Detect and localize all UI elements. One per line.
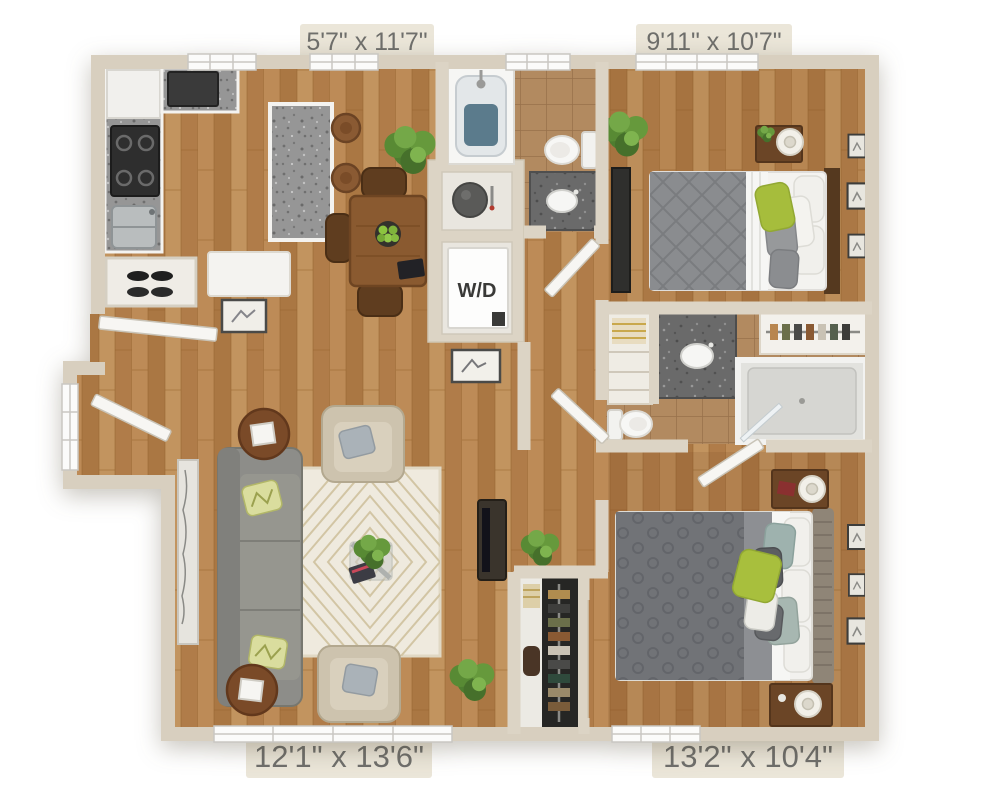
dimension-text-bedroom-2: 13'2" x 10'4"	[663, 739, 833, 774]
wall-art-entry	[222, 300, 266, 332]
comforter	[650, 172, 746, 290]
bathroom-2	[608, 312, 866, 442]
dining-chair	[326, 214, 352, 262]
window-entry-sidelight	[62, 384, 78, 470]
toilet	[545, 132, 597, 168]
throw-pillow	[342, 663, 378, 696]
storage-box	[523, 584, 540, 608]
kitchen-hood-appliance	[168, 72, 218, 106]
detergent-box	[492, 312, 505, 326]
bed	[616, 508, 834, 684]
table-lamp	[777, 129, 803, 155]
headboard	[812, 508, 834, 684]
closet	[514, 572, 588, 734]
washer-dryer-closet: W/D	[442, 242, 512, 334]
refrigerator	[107, 70, 160, 118]
shoe-closet	[106, 258, 196, 306]
toilet	[608, 410, 652, 440]
kitchen-island	[270, 104, 332, 240]
shower-drain	[799, 398, 805, 404]
armchair	[322, 406, 404, 482]
wall-frames	[848, 525, 867, 644]
tv-console	[478, 500, 506, 580]
bathroom-closet	[760, 312, 866, 354]
kitchen-sink	[112, 206, 156, 248]
water-heater-closet	[442, 172, 512, 230]
bag	[523, 646, 540, 676]
floorplan-image: 5'7" x 11'7" 9'11" x 10'7" 12'1" x 13'6"…	[0, 0, 1000, 800]
window-bathroom-1	[506, 54, 570, 70]
bar-stool	[332, 164, 360, 192]
dimension-text-bedroom-1: 9'11" x 10'7"	[646, 28, 781, 56]
window-living-room	[214, 726, 452, 742]
armchair	[318, 646, 400, 722]
table-lamp	[795, 691, 821, 717]
side-table	[239, 409, 289, 459]
vanity-sink	[658, 312, 736, 398]
nightstand	[756, 126, 803, 162]
hanging-clothes	[770, 324, 850, 340]
coffee-table	[348, 535, 392, 585]
window-kitchen-2	[310, 54, 378, 70]
window-kitchen-1	[188, 54, 256, 70]
nightstand	[772, 470, 828, 508]
side-table	[227, 665, 277, 715]
window-bedroom-2	[612, 726, 700, 742]
bath-mat	[464, 104, 498, 146]
dining-table	[350, 196, 426, 286]
tv-screen	[482, 508, 490, 572]
shower-head	[477, 80, 486, 89]
dimension-text-living-room: 12'1" x 13'6"	[254, 739, 424, 774]
dimension-text-kitchen: 5'7" x 11'7"	[306, 28, 427, 56]
comforter	[616, 512, 744, 680]
walk-in-shower	[738, 360, 866, 442]
hanging-clothes	[548, 590, 570, 711]
table-lamp	[799, 476, 825, 502]
kitchen-peninsula	[208, 252, 290, 296]
apartment: W/D	[62, 54, 872, 742]
dining-chair	[358, 284, 402, 316]
bar-stool	[332, 114, 360, 142]
wall-art-hall	[452, 350, 500, 382]
accent-mirror	[178, 460, 198, 644]
wall-frames	[848, 135, 867, 258]
dining-chair	[362, 168, 406, 198]
tablet	[397, 258, 425, 279]
washer-dryer-label: W/D	[458, 280, 497, 302]
vanity-sink	[530, 172, 597, 230]
kitchen-stove	[111, 126, 159, 196]
linen-closet	[608, 312, 652, 404]
nightstand	[770, 684, 832, 726]
water-heater	[453, 183, 487, 217]
bed	[650, 168, 840, 294]
dresser	[612, 168, 630, 292]
window-bedroom-1	[636, 54, 758, 70]
bathtub	[448, 66, 514, 164]
floorplan-page: 5'7" x 11'7" 9'11" x 10'7" 12'1" x 13'6"…	[0, 0, 1000, 800]
